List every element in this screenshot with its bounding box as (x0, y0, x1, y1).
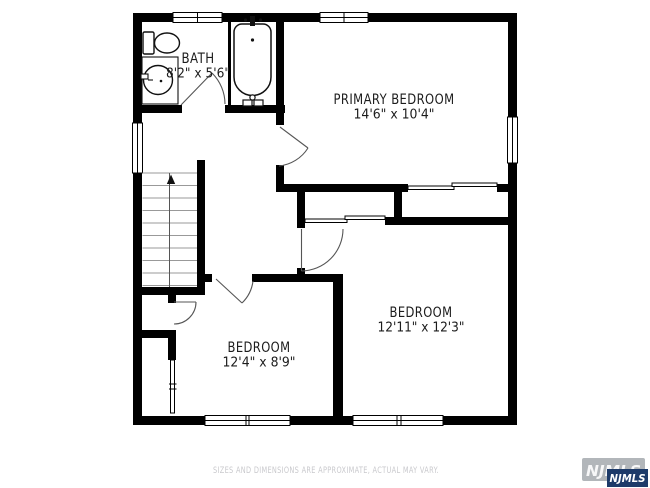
bath-bottom-wall-left (142, 105, 182, 113)
njmls-logo-navy-text: NJMLS (610, 472, 646, 485)
door-bedroom2 (302, 229, 344, 271)
wall-right (508, 13, 517, 425)
door-understair-closet (174, 302, 196, 324)
bath-dimensions: 8'2" x 5'6" (166, 66, 230, 82)
window-hall-left (133, 123, 143, 173)
window-lower-bedroom-bottom (205, 416, 290, 426)
door-lower-bedroom (216, 279, 253, 303)
stairs-up-arrow-icon (167, 175, 175, 185)
window-primary-top (320, 13, 368, 23)
stairs (143, 173, 198, 287)
slider-primary-closet (408, 183, 497, 190)
closet-horizontal-wall (137, 330, 176, 338)
closet-bottom-wall (394, 217, 508, 225)
lower-bedroom-top-wall (252, 274, 343, 282)
closet-bottom-wall-end (385, 217, 394, 225)
hall-bedroom2-wall-upper (297, 184, 305, 228)
closet2-right-wall (168, 338, 176, 360)
bedroom-right-dimensions: 12'11" x 12'3" (378, 320, 465, 336)
bedroom2-left-wall (333, 274, 343, 416)
toilet-icon (143, 32, 180, 54)
stair-right-wall (197, 160, 205, 295)
floor-plan-page: BATH 8'2" x 5'6" PRIMARY BEDROOM 14'6" x… (0, 0, 650, 488)
window-primary-right (508, 117, 518, 163)
window-bath-top (173, 13, 222, 23)
room-labels: BATH 8'2" x 5'6" PRIMARY BEDROOM 14'6" x… (166, 51, 465, 371)
bifold-lower-bedroom-closet (169, 360, 177, 413)
primary-bottom-wall (276, 184, 408, 192)
tub-partition (228, 22, 231, 105)
hall-primary-wall-upper (276, 22, 284, 125)
lower-bedroom-top-wall-stub (205, 274, 212, 282)
stair-bottom-wall (142, 287, 205, 295)
njmls-watermark: NJMLS NJMLS (582, 458, 648, 487)
primary-bedroom-dimensions: 14'6" x 10'4" (354, 107, 435, 123)
floor-plan-canvas: BATH 8'2" x 5'6" PRIMARY BEDROOM 14'6" x… (0, 0, 650, 488)
wall-bottom (133, 416, 517, 425)
footer-disclaimer: SIZES AND DIMENSIONS ARE APPROXIMATE, AC… (213, 466, 439, 476)
primary-bottom-wall-right (497, 184, 508, 192)
door-primary-bedroom (279, 127, 308, 166)
window-bedroom2-bottom (353, 416, 443, 426)
bathtub-icon (234, 16, 271, 106)
slider-bedroom2-closet (305, 216, 385, 223)
bedroom-lower-dimensions: 12'4" x 8'9" (223, 355, 296, 371)
